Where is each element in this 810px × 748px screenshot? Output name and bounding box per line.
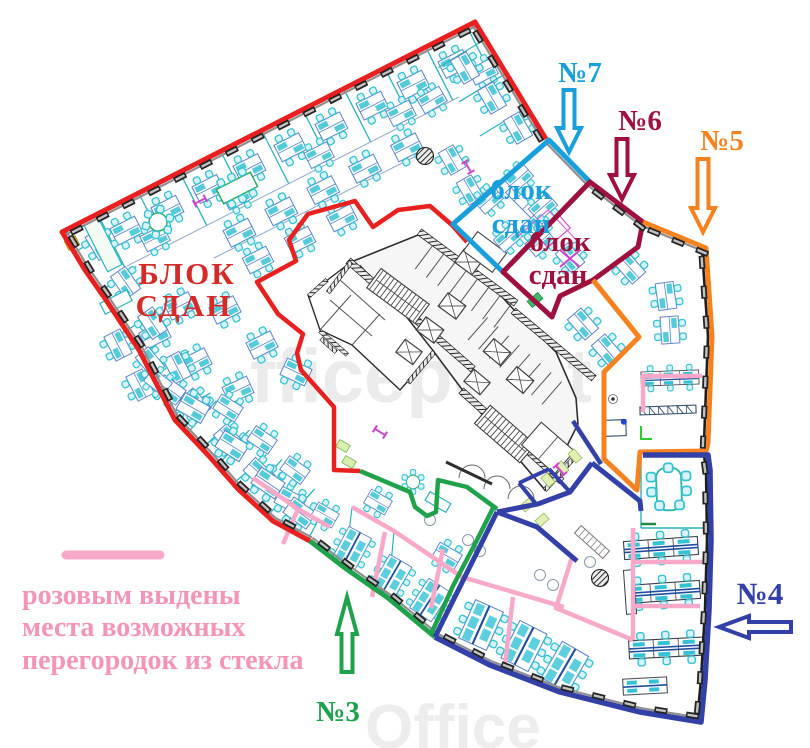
svg-text:сдан: сдан (529, 259, 588, 291)
svg-text:блок: блок (529, 226, 591, 258)
svg-text:№6: №6 (618, 105, 662, 137)
svg-text:блок: блок (490, 174, 552, 206)
svg-text:№3: №3 (316, 696, 360, 728)
svg-text:№7: №7 (558, 57, 602, 89)
svg-text:розовым выдены: розовым выдены (22, 580, 241, 611)
svg-text:БЛОК: БЛОК (138, 256, 235, 291)
svg-text:№5: №5 (700, 125, 744, 157)
svg-text:№4: №4 (737, 576, 784, 611)
svg-text:перегородок из стекла: перегородок из стекла (22, 645, 303, 676)
svg-text:Office: Office (365, 693, 541, 748)
svg-text:СДАН: СДАН (136, 288, 233, 323)
svg-text:места возможных: места возможных (22, 612, 245, 643)
